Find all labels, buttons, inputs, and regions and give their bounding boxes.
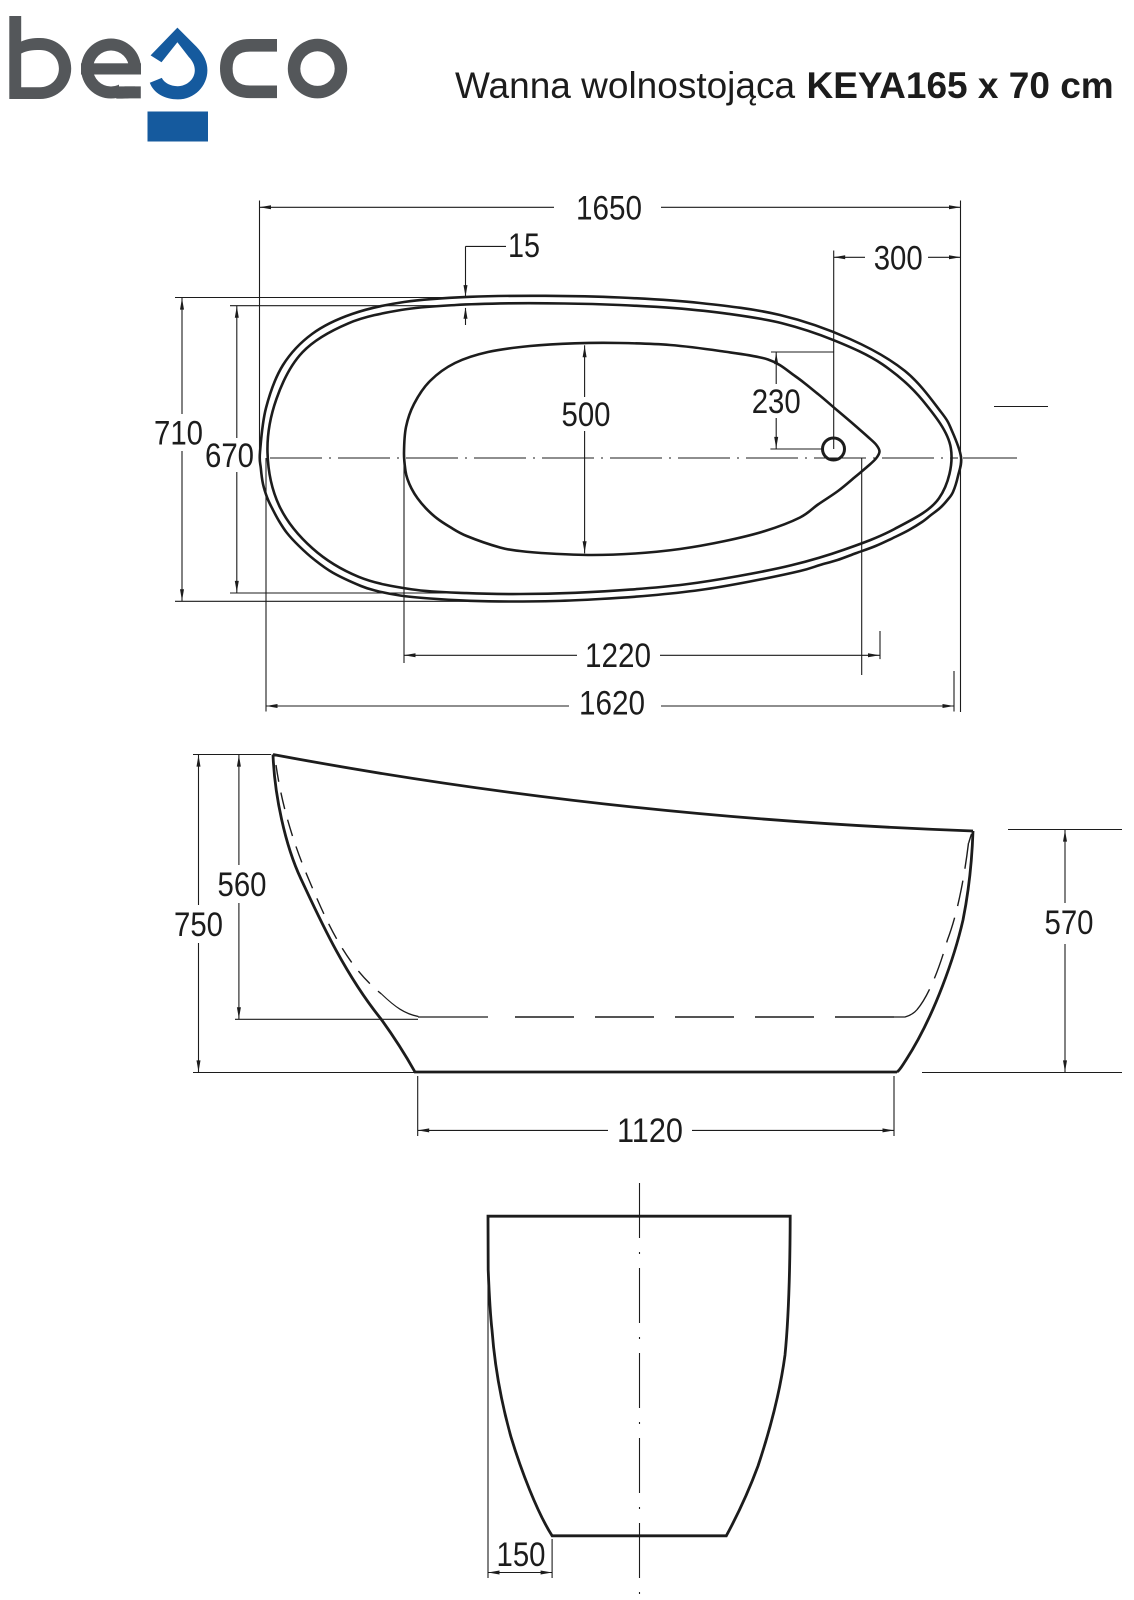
svg-text:15: 15 [508,227,540,265]
svg-text:560: 560 [218,866,267,904]
svg-text:500: 500 [562,396,611,434]
svg-text:1120: 1120 [617,1112,683,1150]
svg-text:570: 570 [1045,904,1094,942]
svg-text:Wanna wolnostojąca: Wanna wolnostojąca [455,65,795,106]
svg-text:150: 150 [497,1536,546,1574]
svg-text:230: 230 [752,383,801,421]
svg-text:1620: 1620 [579,685,645,723]
svg-text:300: 300 [874,239,923,277]
svg-text:1650: 1650 [576,190,642,228]
svg-text:750: 750 [174,906,223,944]
svg-text:KEYA165 x 70 cm: KEYA165 x 70 cm [807,65,1114,106]
svg-text:1220: 1220 [585,637,651,675]
svg-text:710: 710 [154,415,203,453]
svg-text:670: 670 [205,437,254,475]
